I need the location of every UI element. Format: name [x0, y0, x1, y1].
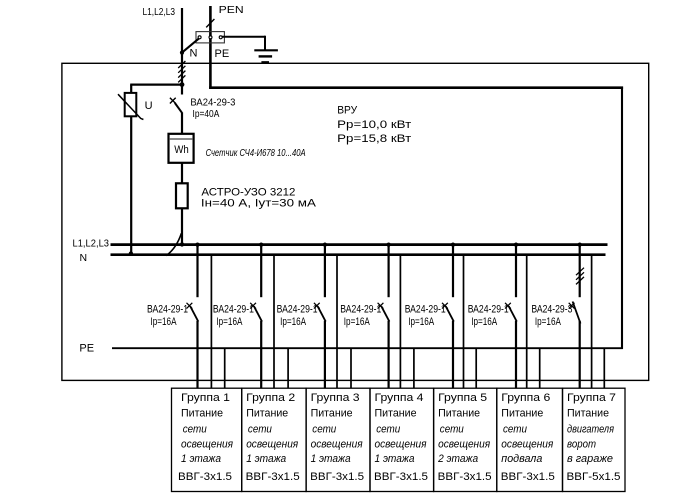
svg-text:в гараже: в гараже: [567, 453, 613, 465]
svg-text:сети: сети: [503, 423, 528, 435]
svg-text:ВВГ-3х1.5: ВВГ-3х1.5: [310, 471, 364, 483]
svg-text:Iр=16А: Iр=16А: [280, 316, 307, 328]
svg-text:Iр=40А: Iр=40А: [193, 108, 220, 120]
svg-text:ВА24-29-1: ВА24-29-1: [340, 304, 381, 316]
svg-text:1 этажа: 1 этажа: [375, 453, 415, 465]
svg-text:освещения: освещения: [246, 439, 298, 451]
svg-text:Iр=16А: Iр=16А: [344, 316, 371, 328]
svg-text:Iр=16А: Iр=16А: [151, 316, 178, 328]
svg-text:Питание: Питание: [181, 407, 223, 419]
svg-text:L1,L2,L3: L1,L2,L3: [73, 238, 110, 250]
svg-text:освещения: освещения: [311, 439, 363, 451]
svg-text:освещения: освещения: [501, 439, 553, 451]
svg-text:ВРУ: ВРУ: [337, 104, 358, 116]
svg-text:ворот: ворот: [567, 439, 596, 451]
svg-text:ВА24-29-1: ВА24-29-1: [405, 304, 446, 316]
svg-text:Группа 6: Группа 6: [501, 392, 550, 404]
svg-text:Питание: Питание: [567, 407, 609, 419]
svg-text:Питание: Питание: [438, 407, 480, 419]
svg-text:U: U: [145, 100, 153, 112]
svg-text:N: N: [80, 252, 88, 264]
svg-text:Iр=16А: Iр=16А: [535, 316, 562, 328]
svg-text:Iн=40 А, Iут=30 мА: Iн=40 А, Iут=30 мА: [201, 197, 317, 209]
svg-text:L1,L2,L3: L1,L2,L3: [143, 7, 176, 18]
svg-text:1 этажа: 1 этажа: [246, 453, 286, 465]
svg-text:Счетчик СЧ4-И678 10...40А: Счетчик СЧ4-И678 10...40А: [206, 148, 306, 159]
svg-text:Питание: Питание: [501, 407, 543, 419]
svg-text:Питание: Питание: [246, 407, 288, 419]
svg-text:ВА24-29-3: ВА24-29-3: [531, 304, 572, 316]
svg-text:Группа 7: Группа 7: [567, 392, 616, 404]
svg-text:сети: сети: [376, 423, 401, 435]
svg-text:сети: сети: [312, 423, 337, 435]
svg-text:подвала: подвала: [501, 453, 542, 465]
svg-text:1 этажа: 1 этажа: [311, 453, 351, 465]
svg-text:освещения: освещения: [438, 439, 490, 451]
svg-text:ВВГ-5х1.5: ВВГ-5х1.5: [567, 471, 621, 483]
svg-text:2 этажа: 2 этажа: [437, 453, 478, 465]
svg-text:Wh: Wh: [174, 144, 189, 156]
svg-text:Iр=16А: Iр=16А: [408, 316, 435, 328]
svg-text:Группа 5: Группа 5: [438, 392, 487, 404]
svg-text:Iр=16А: Iр=16А: [216, 316, 243, 328]
svg-text:сети: сети: [183, 423, 208, 435]
svg-text:Рр=10,0 кВт: Рр=10,0 кВт: [337, 119, 411, 131]
svg-text:Группа 2: Группа 2: [246, 392, 295, 404]
svg-text:Iр=16А: Iр=16А: [471, 316, 498, 328]
svg-text:ВА24-29-1: ВА24-29-1: [147, 304, 188, 316]
svg-text:1 этажа: 1 этажа: [181, 453, 221, 465]
svg-text:Питание: Питание: [375, 407, 417, 419]
svg-text:PE: PE: [215, 48, 230, 60]
svg-text:освещения: освещения: [181, 439, 233, 451]
svg-text:ВВГ-3х1.5: ВВГ-3х1.5: [501, 471, 555, 483]
svg-text:PEN: PEN: [219, 4, 244, 16]
svg-text:Группа 3: Группа 3: [311, 392, 360, 404]
svg-text:ВВГ-3х1.5: ВВГ-3х1.5: [178, 471, 232, 483]
svg-text:ВВГ-3х1.5: ВВГ-3х1.5: [374, 471, 428, 483]
svg-text:Группа 4: Группа 4: [375, 392, 424, 404]
svg-text:сети: сети: [248, 423, 273, 435]
svg-text:освещения: освещения: [375, 439, 427, 451]
svg-text:ВА24-29-1: ВА24-29-1: [277, 304, 318, 316]
svg-text:ВА24-29-1: ВА24-29-1: [213, 304, 254, 316]
svg-text:ВВГ-3х1.5: ВВГ-3х1.5: [438, 471, 492, 483]
svg-text:ВА24-29-1: ВА24-29-1: [468, 304, 509, 316]
svg-text:ВА24-29-3: ВА24-29-3: [190, 97, 235, 109]
svg-text:двигателя: двигателя: [567, 423, 614, 435]
svg-text:Рр=15,8 кВт: Рр=15,8 кВт: [337, 133, 411, 145]
svg-text:N: N: [190, 48, 198, 60]
svg-text:сети: сети: [440, 423, 465, 435]
svg-text:Питание: Питание: [311, 407, 353, 419]
svg-text:PE: PE: [79, 343, 94, 355]
svg-text:Группа 1: Группа 1: [181, 392, 230, 404]
svg-text:ВВГ-3х1.5: ВВГ-3х1.5: [246, 471, 300, 483]
